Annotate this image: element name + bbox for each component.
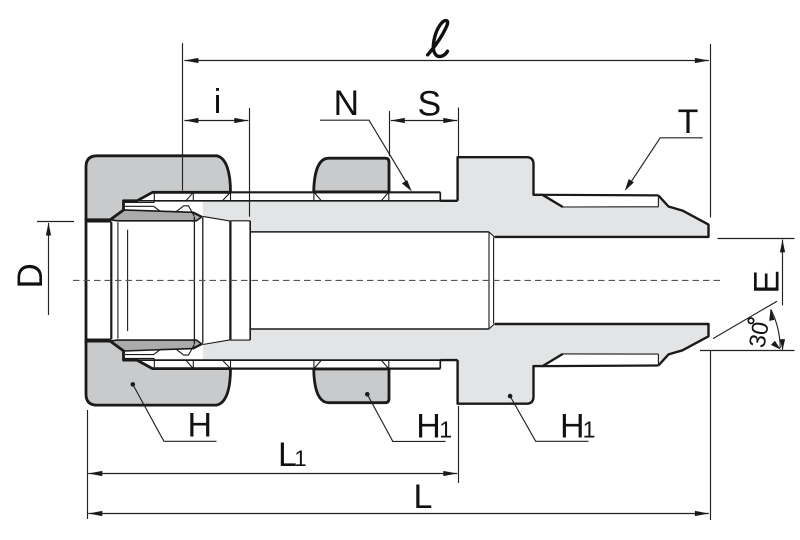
svg-text:E: E (747, 270, 786, 293)
svg-text:S: S (418, 83, 442, 123)
svg-text:L: L (414, 478, 433, 516)
svg-text:T: T (678, 103, 699, 141)
svg-text:30: 30 (744, 320, 774, 350)
svg-text:D: D (11, 263, 50, 288)
svg-text:1: 1 (294, 446, 306, 471)
svg-text:H: H (560, 408, 585, 446)
svg-text:1: 1 (583, 417, 596, 443)
svg-text:N: N (333, 83, 359, 123)
svg-text:H: H (416, 408, 441, 446)
svg-text:H: H (188, 407, 213, 445)
svg-text:1: 1 (439, 417, 452, 443)
svg-text:i: i (214, 83, 222, 121)
